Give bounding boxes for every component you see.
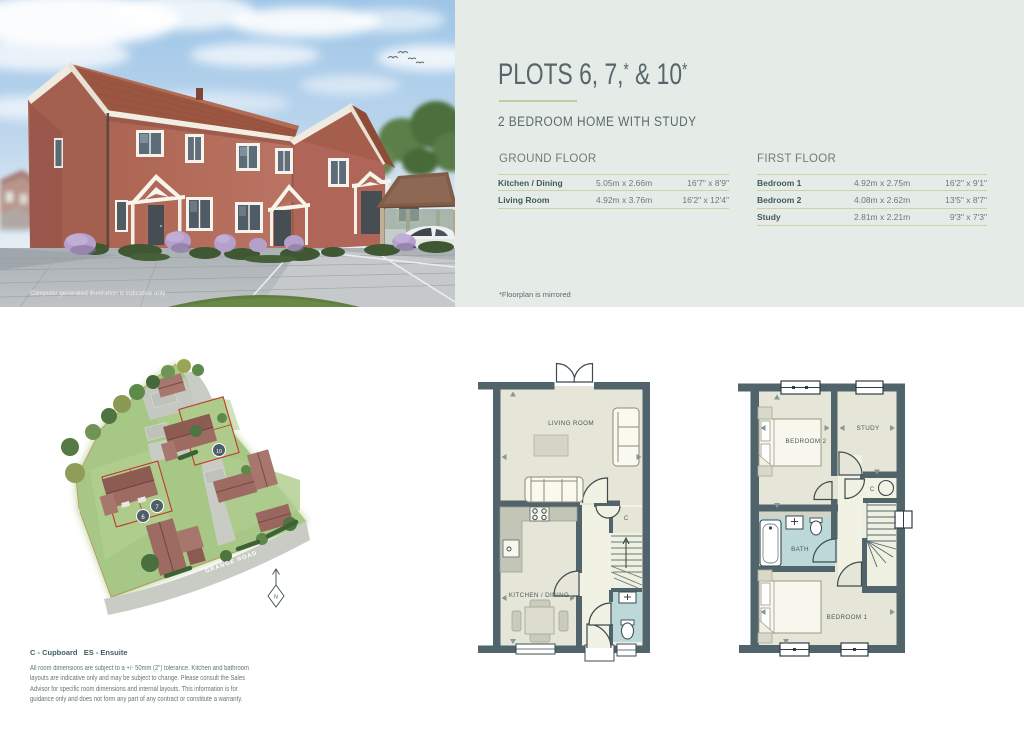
svg-text:Computer generated illustratio: Computer generated illustration is indic… — [30, 290, 166, 297]
svg-text:LIVING ROOM: LIVING ROOM — [548, 420, 594, 427]
svg-text:BEDROOM 2: BEDROOM 2 — [786, 438, 827, 445]
svg-text:N: N — [274, 595, 278, 601]
svg-text:C: C — [870, 487, 875, 493]
svg-text:STUDY: STUDY — [856, 425, 880, 432]
svg-text:10: 10 — [216, 449, 222, 455]
svg-text:BEDROOM 1: BEDROOM 1 — [827, 614, 868, 621]
svg-text:C: C — [624, 516, 629, 522]
svg-text:KITCHEN / DINING: KITCHEN / DINING — [509, 592, 570, 599]
svg-text:BATH: BATH — [791, 546, 809, 553]
